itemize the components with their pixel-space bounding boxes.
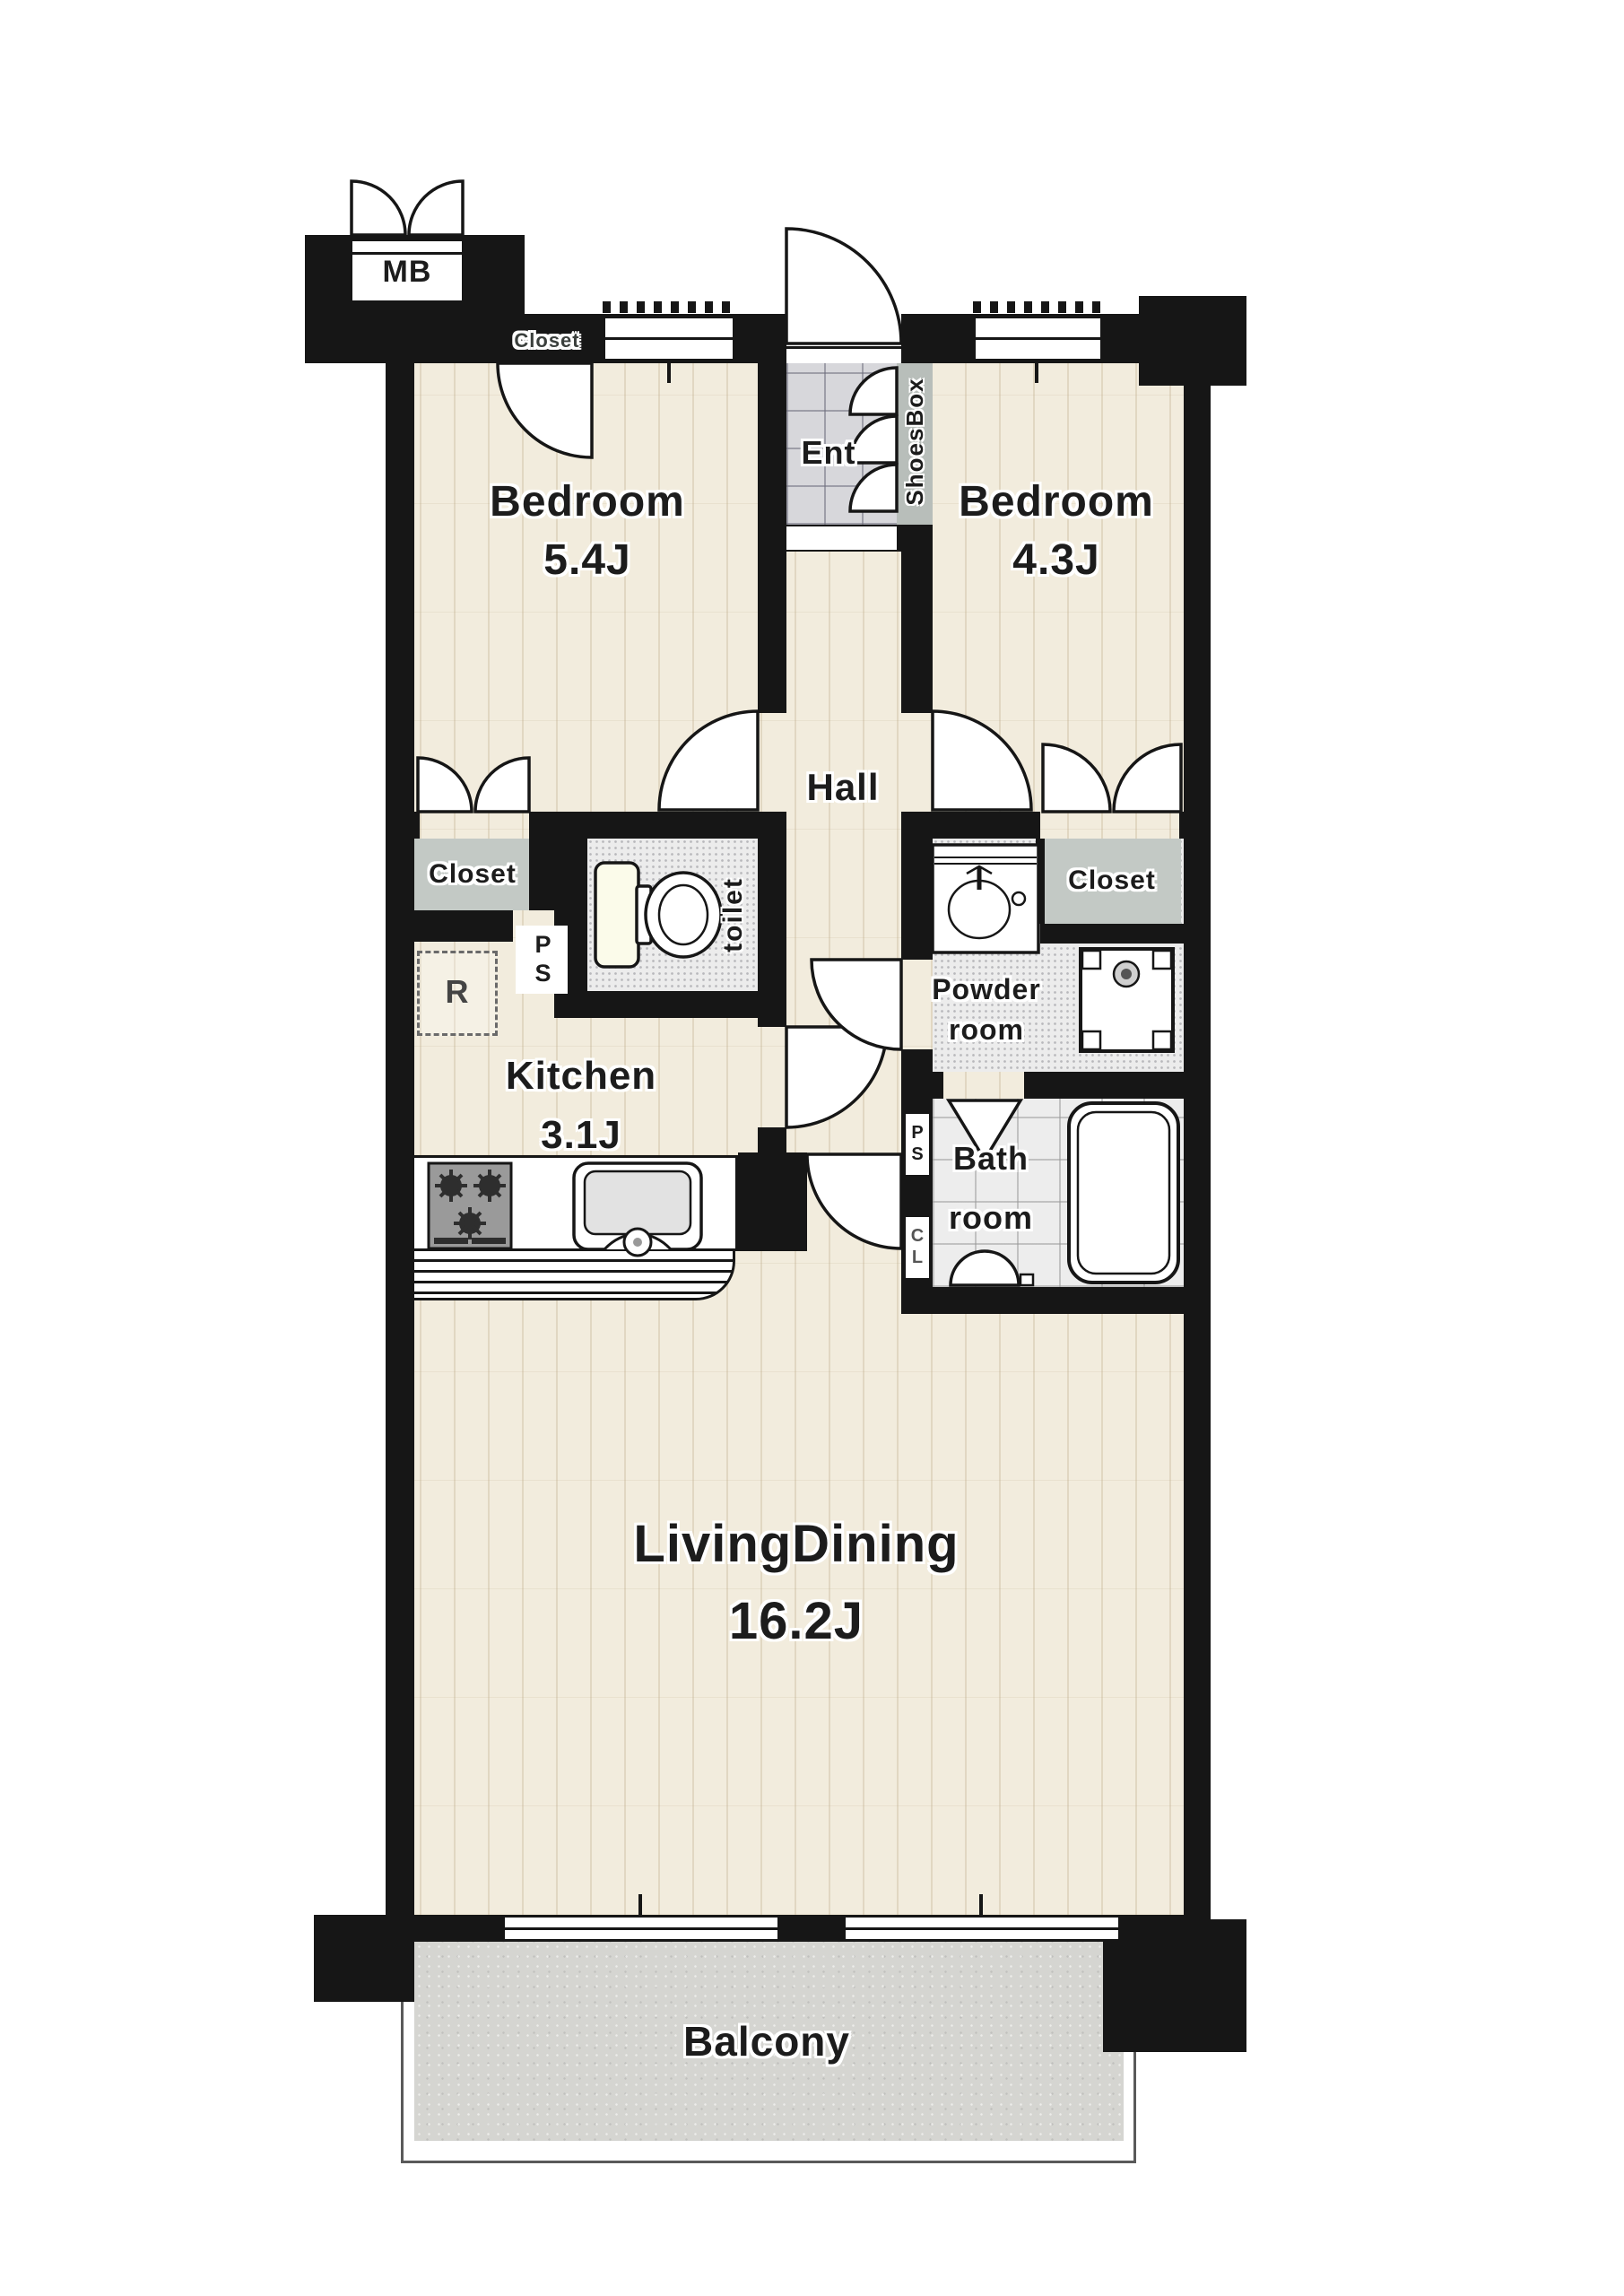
pipe-shaft-bath-label: PS <box>908 1123 926 1166</box>
closet-bedroom-left-label: Closet <box>429 861 517 888</box>
refrigerator-space-label: R <box>446 976 470 1008</box>
vanity-sink-icon <box>933 845 1038 952</box>
closet-top-door-icon <box>498 363 592 457</box>
living-dining-label: LivingDining <box>633 1518 959 1570</box>
floor-plan: MB Closet Bedroom 5.4J Ent ShoesBox Bedr… <box>0 0 1624 2296</box>
bath-step-icon <box>951 1251 1033 1285</box>
bedroom-left-size: 5.4J <box>543 539 630 582</box>
hall-label: Hall <box>806 769 879 806</box>
closet-niche-bath-label: CL <box>908 1226 926 1269</box>
sink-icon <box>574 1163 701 1256</box>
meter-box-label: MB <box>383 257 432 287</box>
bedroom-right-door-icon <box>933 711 1031 810</box>
shoes-box-label: ShoesBox <box>903 377 926 505</box>
pipe-shaft-kitchen-label: PS <box>531 931 555 988</box>
closet-bedroom-left-door-icon <box>418 758 529 812</box>
kitchen-label: Kitchen <box>506 1057 656 1096</box>
stove-icon <box>429 1163 511 1248</box>
bathroom-label-line1: Bath <box>953 1143 1029 1175</box>
bathtub-icon <box>1069 1103 1178 1283</box>
meter-box-door-icon <box>352 181 463 235</box>
toilet-label: toilet <box>720 877 747 952</box>
toilet-fixture-icon <box>595 863 721 967</box>
closet-bedroom-right-label: Closet <box>1068 867 1156 894</box>
bathroom-label-line2: room <box>949 1202 1033 1234</box>
kitchen-size: 3.1J <box>541 1116 621 1155</box>
bedroom-left-door-icon <box>659 711 758 810</box>
closet-top-label: Closet <box>514 331 579 351</box>
balcony-label: Balcony <box>683 2021 850 2062</box>
entrance-label: Ent <box>802 437 856 469</box>
bedroom-right-size: 4.3J <box>1012 539 1099 582</box>
bedroom-right-label: Bedroom <box>959 481 1154 524</box>
living-dining-door-icon <box>807 1154 901 1248</box>
shoes-box-door-icon <box>850 368 897 511</box>
entrance-door-icon <box>786 229 901 344</box>
closet-bedroom-right-door-icon <box>1043 744 1181 812</box>
fixtures-overlay <box>0 0 1624 2296</box>
living-dining-size: 16.2J <box>729 1596 864 1648</box>
powder-room-label-line1: Powder <box>932 975 1041 1004</box>
washing-machine-icon <box>1081 949 1173 1051</box>
powder-room-label-line2: room <box>949 1015 1024 1044</box>
bedroom-left-label: Bedroom <box>490 481 685 524</box>
